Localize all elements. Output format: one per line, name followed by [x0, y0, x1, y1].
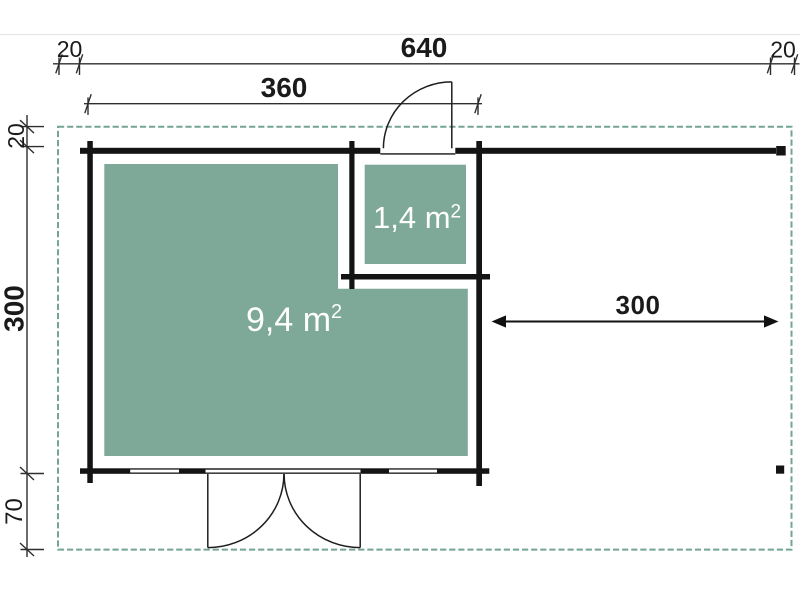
svg-text:300: 300 — [616, 290, 661, 320]
svg-text:360: 360 — [261, 72, 308, 103]
svg-text:300: 300 — [0, 285, 30, 332]
svg-text:20: 20 — [3, 123, 29, 149]
svg-text:20: 20 — [57, 36, 83, 62]
svg-text:640: 640 — [401, 32, 448, 63]
svg-text:20: 20 — [770, 37, 796, 63]
svg-text:1,4 m2: 1,4 m2 — [373, 200, 461, 235]
svg-text:9,4 m2: 9,4 m2 — [246, 301, 342, 339]
svg-text:70: 70 — [1, 498, 28, 525]
